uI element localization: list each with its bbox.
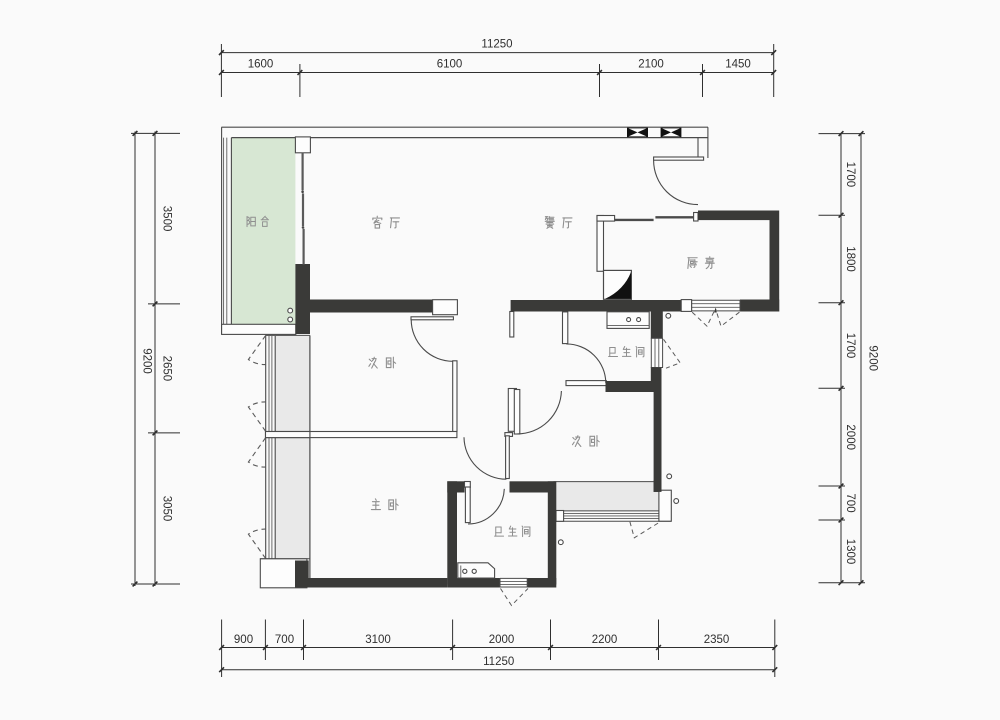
svg-text:2000: 2000 [489,634,515,646]
svg-text:11250: 11250 [481,39,512,51]
svg-text:2650: 2650 [161,356,173,382]
svg-text:3500: 3500 [161,206,173,232]
svg-text:3100: 3100 [365,634,391,646]
svg-text:9200: 9200 [141,348,153,374]
svg-text:9200: 9200 [867,345,879,371]
svg-text:2100: 2100 [638,59,664,71]
svg-text:2000: 2000 [844,424,856,450]
svg-text:900: 900 [234,634,253,646]
svg-text:1700: 1700 [844,333,856,359]
svg-text:2200: 2200 [592,634,618,646]
svg-text:1800: 1800 [844,246,856,272]
svg-text:11250: 11250 [483,656,514,668]
svg-text:6100: 6100 [437,59,463,71]
svg-text:1450: 1450 [725,59,751,71]
svg-text:1700: 1700 [844,162,856,188]
svg-text:700: 700 [275,634,294,646]
svg-text:1600: 1600 [248,59,274,71]
svg-text:3050: 3050 [161,496,173,522]
svg-text:2350: 2350 [704,634,730,646]
svg-text:1300: 1300 [844,539,856,565]
svg-text:700: 700 [844,493,856,512]
